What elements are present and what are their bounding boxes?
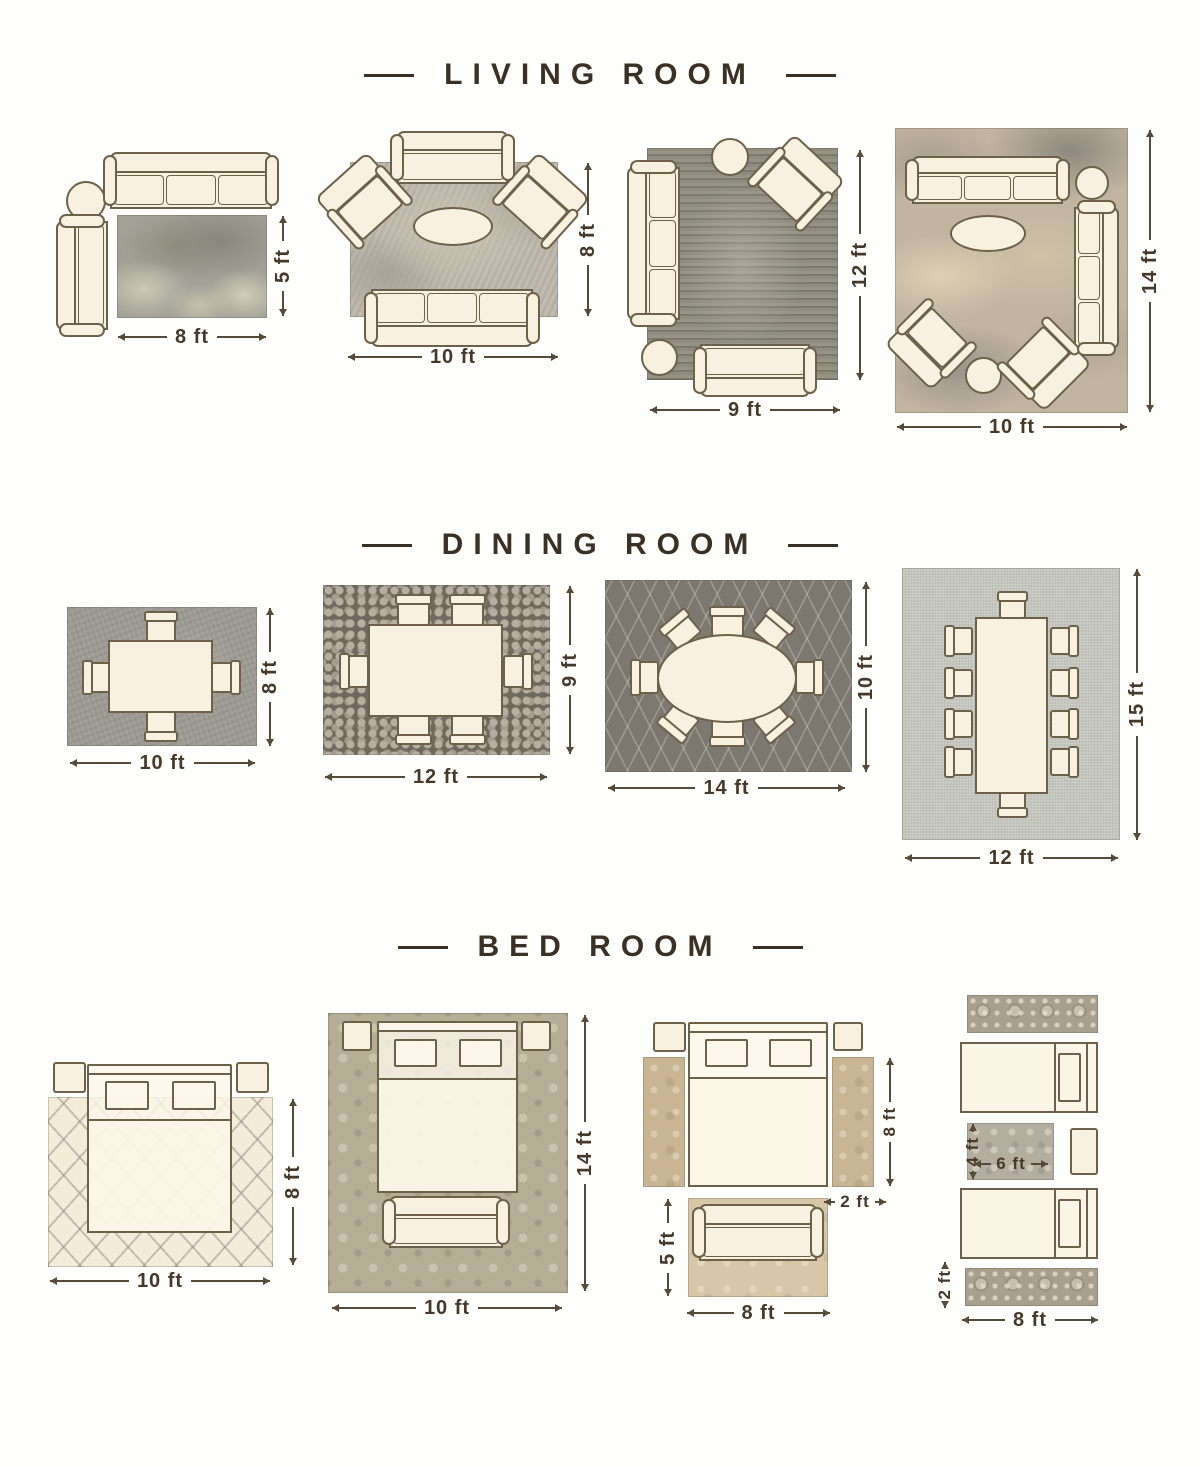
- round-side-table: [965, 357, 1002, 394]
- pillow: [105, 1081, 149, 1110]
- dining-chair: [947, 627, 973, 655]
- round-side-table: [711, 138, 749, 176]
- round-side-table: [1075, 166, 1109, 200]
- dining-chair: [947, 669, 973, 697]
- dining-chair: [397, 713, 430, 742]
- dining-chair: [211, 662, 238, 693]
- dining-chair: [1050, 627, 1076, 655]
- bed-blanket: [377, 1078, 518, 1193]
- rug: [117, 215, 267, 318]
- dining-chair: [342, 655, 369, 688]
- dining-chair: [947, 710, 973, 738]
- runner-rug: [643, 1057, 685, 1187]
- bed-blanket: [688, 1077, 828, 1187]
- dining-chair: [451, 597, 484, 626]
- width-dimension: 9 ft: [650, 399, 840, 421]
- height-dimension: 12 ft: [849, 150, 871, 380]
- headboard: [1086, 1188, 1098, 1259]
- width-dimension: 14 ft: [608, 777, 845, 799]
- runner-length-dimension: 8 ft: [962, 1309, 1098, 1331]
- bed-blanket-edge: [1054, 1190, 1056, 1257]
- height-dimension: 8 ft: [577, 163, 599, 316]
- width-dimension: 12 ft: [905, 847, 1118, 869]
- height-dimension: 8 ft: [259, 608, 281, 746]
- sofa-three-seat: [110, 152, 272, 209]
- title-dash: [788, 544, 838, 547]
- dining-chair: [795, 661, 821, 694]
- dining-chair: [451, 713, 484, 742]
- pillow: [769, 1039, 812, 1067]
- dining-chair: [999, 594, 1026, 619]
- loveseat: [56, 221, 108, 330]
- bed: [688, 1022, 828, 1187]
- sofa-three-seat: [371, 289, 533, 347]
- headboard: [690, 1024, 826, 1033]
- dining-chair: [1050, 669, 1076, 697]
- pillow: [705, 1039, 748, 1067]
- title-dash: [753, 946, 803, 949]
- dining-chair: [397, 597, 430, 626]
- sofa-three-seat: [627, 167, 680, 320]
- bed-blanket: [87, 1119, 232, 1233]
- height-dimension: 15 ft: [1126, 569, 1148, 840]
- bench: [389, 1196, 503, 1248]
- width-dimension: 10 ft: [332, 1297, 562, 1319]
- dining-chair: [1050, 748, 1076, 776]
- title-dash: [362, 544, 412, 547]
- dining-table: [975, 617, 1048, 794]
- headboard: [1086, 1042, 1098, 1113]
- title-dash: [364, 74, 414, 77]
- nightstand: [342, 1021, 372, 1051]
- title-dash: [786, 74, 836, 77]
- width-dimension: 10 ft: [348, 346, 558, 368]
- dining-chair: [1050, 710, 1076, 738]
- title-dash: [398, 946, 448, 949]
- nightstand: [653, 1022, 686, 1052]
- foot-rug-width-dimension: 8 ft: [687, 1302, 830, 1324]
- runner-rug: [967, 995, 1098, 1033]
- dining-chair: [146, 614, 176, 643]
- oval-coffee-table: [413, 207, 493, 246]
- between-rug-width-dimension: 6 ft: [974, 1153, 1048, 1175]
- pillow: [459, 1039, 502, 1067]
- sofa-three-seat: [912, 156, 1063, 204]
- pillow: [172, 1081, 216, 1110]
- sofa-three-seat: [1074, 207, 1119, 349]
- section-title-dining: DINING ROOM: [0, 528, 1200, 562]
- dining-chair: [633, 661, 659, 694]
- bed: [87, 1064, 232, 1233]
- runner-width-dimension: 2 ft: [824, 1191, 886, 1213]
- width-dimension: 10 ft: [897, 416, 1127, 438]
- height-dimension: 8 ft: [282, 1099, 304, 1265]
- width-dimension: 12 ft: [325, 766, 547, 788]
- bed: [377, 1021, 518, 1193]
- living-room-title: LIVING ROOM: [444, 58, 756, 92]
- runner-rug: [965, 1268, 1098, 1306]
- width-dimension: 10 ft: [50, 1270, 270, 1292]
- foot-rug-height-dimension: 5 ft: [657, 1199, 679, 1296]
- nightstand: [521, 1021, 551, 1051]
- dining-chair: [711, 609, 744, 637]
- dining-room-title: DINING ROOM: [442, 528, 759, 562]
- dining-chair: [146, 710, 176, 739]
- bed-room-title: BED ROOM: [478, 930, 723, 964]
- height-dimension: 9 ft: [559, 586, 581, 754]
- oval-dining-table: [657, 634, 797, 723]
- dining-table: [108, 640, 213, 713]
- pillow: [394, 1039, 437, 1067]
- dining-table: [368, 624, 503, 717]
- width-dimension: 10 ft: [70, 752, 255, 774]
- runner-width-dimension: 2 ft: [934, 1262, 956, 1308]
- width-dimension: 8 ft: [118, 326, 266, 348]
- runner-rug: [832, 1057, 874, 1187]
- nightstand: [236, 1062, 269, 1093]
- pillow: [1058, 1053, 1081, 1102]
- section-title-bedroom: BED ROOM: [0, 930, 1200, 964]
- headboard: [89, 1066, 230, 1075]
- dining-chair: [503, 655, 530, 688]
- rug-size-guide: LIVING ROOM 5 ft 8 ft 8 ft 10 ft 12 ft 9…: [0, 0, 1200, 1467]
- height-dimension: 5 ft: [272, 216, 294, 316]
- nightstand: [53, 1062, 86, 1093]
- height-dimension: 14 ft: [574, 1015, 596, 1291]
- bed-blanket-edge: [1054, 1044, 1056, 1111]
- dining-chair: [947, 748, 973, 776]
- height-dimension: 14 ft: [1139, 130, 1161, 412]
- nightstand: [833, 1022, 863, 1051]
- twin-bed: [960, 1188, 1098, 1259]
- twin-bed: [960, 1042, 1098, 1113]
- nightstand: [1070, 1128, 1098, 1175]
- loveseat: [699, 1204, 817, 1261]
- loveseat: [397, 131, 508, 184]
- height-dimension: 10 ft: [855, 582, 877, 772]
- loveseat: [700, 344, 810, 397]
- headboard: [379, 1023, 516, 1032]
- pillow: [1058, 1199, 1081, 1248]
- runner-height-dimension: 8 ft: [879, 1058, 901, 1186]
- round-side-table: [641, 339, 678, 376]
- oval-coffee-table: [950, 215, 1026, 252]
- section-title-living: LIVING ROOM: [0, 58, 1200, 92]
